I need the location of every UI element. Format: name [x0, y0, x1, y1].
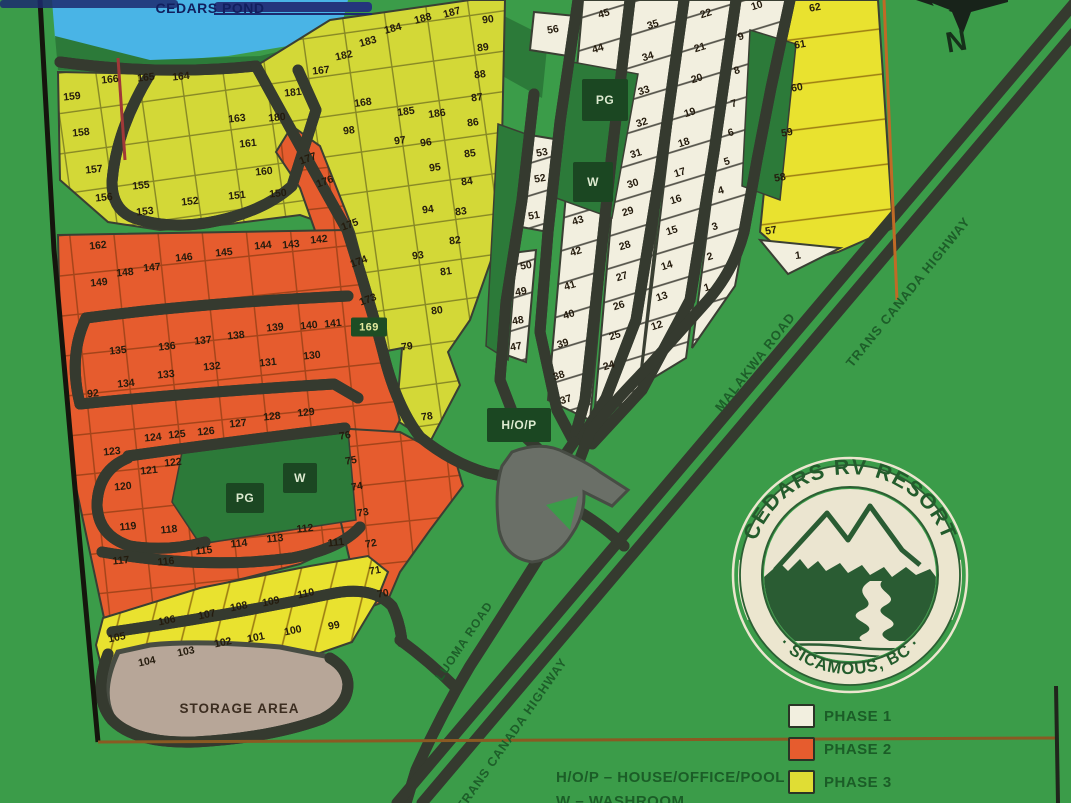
- lot-label-1: 1: [794, 250, 801, 261]
- phase3-swatch-icon: [788, 770, 815, 794]
- phase-legend: PHASE 1 PHASE 2 PHASE 3: [788, 703, 892, 803]
- lot-label-90: 90: [481, 14, 494, 26]
- lot-label-146: 146: [175, 252, 194, 264]
- lot-label-122: 122: [164, 457, 183, 469]
- lot-label-141: 141: [324, 318, 343, 330]
- lot-label-124: 124: [144, 432, 163, 444]
- lot-label-79: 79: [400, 341, 413, 353]
- lot-label-135: 135: [109, 345, 128, 357]
- lot-label-161: 161: [239, 138, 258, 150]
- lot-label-162: 162: [89, 240, 108, 252]
- legend-item-phase2: PHASE 2: [788, 736, 892, 762]
- lot-label-136: 136: [158, 341, 177, 353]
- lot-label-76: 76: [338, 430, 351, 442]
- lot-label-82: 82: [448, 235, 461, 247]
- marker-hop: H/O/P: [487, 408, 551, 442]
- lot-label-130: 130: [303, 350, 322, 362]
- lot-label-129: 129: [297, 407, 316, 419]
- lot-label-131: 131: [259, 357, 278, 369]
- lot-label-52: 52: [533, 173, 546, 185]
- lot-label-73: 73: [356, 507, 369, 519]
- lot-label-156: 156: [95, 192, 114, 204]
- lot-label-57: 57: [764, 225, 777, 237]
- lot-label-112: 112: [296, 523, 314, 535]
- marker-w: W: [283, 463, 317, 493]
- lot-label-150: 150: [269, 188, 288, 200]
- lot-label-180: 180: [268, 112, 287, 124]
- lot-label-86: 86: [466, 117, 479, 129]
- lot-label-89: 89: [476, 42, 489, 54]
- lot-label-75: 75: [344, 455, 357, 467]
- lot-label-132: 132: [203, 361, 222, 373]
- lot-label-159: 159: [63, 91, 82, 103]
- lot-label-163: 163: [228, 113, 247, 125]
- lot-label-186: 186: [428, 108, 447, 121]
- lot-label-95: 95: [428, 162, 441, 174]
- lot-label-115: 115: [195, 545, 213, 557]
- lot-label-153: 153: [136, 206, 155, 218]
- lot-label-58: 58: [773, 172, 786, 184]
- lot-label-166: 166: [101, 74, 120, 86]
- lot-label-113: 113: [266, 533, 284, 545]
- lot-label-165: 165: [137, 72, 156, 84]
- marker-pg: PG: [582, 79, 628, 121]
- lot-label-134: 134: [117, 378, 136, 390]
- lot-label-140: 140: [300, 320, 319, 332]
- lot-label-88: 88: [473, 69, 486, 81]
- lot-label-84: 84: [460, 176, 473, 188]
- phase2-swatch-icon: [788, 737, 815, 761]
- lot-label-151: 151: [228, 190, 247, 202]
- key-line-hop: H/O/P – HOUSE/OFFICE/POOL: [556, 766, 785, 790]
- lot-label-128: 128: [263, 411, 282, 423]
- legend-item-phase3: PHASE 3: [788, 769, 892, 795]
- lot-label-160: 160: [255, 166, 274, 178]
- lot-label-51: 51: [527, 210, 540, 222]
- lot-label-121: 121: [140, 465, 159, 477]
- lot-label-83: 83: [454, 206, 467, 218]
- lot-label-60: 60: [790, 82, 803, 94]
- lot-label-47: 47: [509, 341, 522, 353]
- lot-label-167: 167: [312, 65, 331, 77]
- lot-label-123: 123: [103, 446, 122, 458]
- legend-label: PHASE 2: [824, 741, 892, 758]
- marker-169: 169: [351, 318, 387, 337]
- lot-label-117: 117: [112, 555, 130, 567]
- lot-label-74: 74: [350, 481, 363, 493]
- lot-label-114: 114: [230, 538, 248, 550]
- lot-label-137: 137: [194, 335, 213, 347]
- lot-label-50: 50: [519, 260, 532, 272]
- lot-label-138: 138: [227, 330, 246, 342]
- lot-label-99: 99: [327, 620, 341, 633]
- pond-label: CEDARS POND: [130, 0, 290, 16]
- lot-label-127: 127: [229, 418, 248, 430]
- legend-label: PHASE 1: [824, 708, 892, 725]
- marker-pg: PG: [226, 483, 264, 513]
- lot-label-116: 116: [157, 556, 175, 568]
- lot-label-85: 85: [463, 148, 476, 160]
- lot-label-185: 185: [397, 106, 416, 119]
- lot-label-133: 133: [157, 369, 176, 381]
- lot-label-80: 80: [430, 305, 443, 317]
- lot-label-78: 78: [420, 411, 433, 423]
- lot-label-168: 168: [354, 97, 373, 110]
- lot-label-158: 158: [72, 127, 91, 139]
- lot-label-72: 72: [364, 538, 377, 550]
- lot-label-164: 164: [172, 71, 191, 83]
- lot-label-149: 149: [90, 277, 109, 289]
- resort-map: CEDARS RV RESORT · SICAMOUS, BC · CEDARS…: [0, 0, 1071, 803]
- key-line-w: W – WASHROOM: [556, 790, 785, 803]
- lot-label-142: 142: [310, 234, 329, 246]
- lot-label-98: 98: [342, 125, 355, 137]
- phase1-swatch-icon: [788, 704, 815, 728]
- lot-label-61: 61: [793, 39, 806, 51]
- lot-label-139: 139: [266, 322, 285, 334]
- lot-label-144: 144: [254, 240, 273, 252]
- lot-label-48: 48: [511, 315, 524, 327]
- lot-label-148: 148: [116, 267, 135, 279]
- lot-label-92: 92: [87, 388, 100, 400]
- lot-label-126: 126: [197, 426, 216, 438]
- lot-label-87: 87: [470, 92, 483, 104]
- lot-label-93: 93: [411, 250, 424, 262]
- lot-label-62: 62: [808, 2, 821, 14]
- legend-item-phase1: PHASE 1: [788, 703, 892, 729]
- lot-label-152: 152: [181, 196, 200, 208]
- legend-label: PHASE 3: [824, 774, 892, 791]
- lot-label-155: 155: [132, 180, 151, 192]
- lot-label-94: 94: [421, 204, 434, 216]
- lot-label-71: 71: [368, 565, 381, 577]
- lot-label-96: 96: [419, 137, 432, 149]
- resort-logo: CEDARS RV RESORT · SICAMOUS, BC ·: [730, 455, 970, 695]
- lot-label-118: 118: [160, 524, 178, 536]
- lot-label-120: 120: [114, 481, 133, 493]
- marker-w: W: [573, 162, 613, 202]
- storage-label: STORAGE AREA: [157, 701, 322, 716]
- lot-label-59: 59: [780, 127, 793, 139]
- lot-label-145: 145: [215, 247, 234, 259]
- lot-label-119: 119: [119, 521, 137, 533]
- lot-label-70: 70: [376, 588, 389, 600]
- lot-label-157: 157: [85, 164, 104, 176]
- map-key: H/O/P – HOUSE/OFFICE/POOL W – WASHROOM: [556, 766, 785, 803]
- lot-label-181: 181: [284, 87, 303, 99]
- lot-label-53: 53: [535, 147, 548, 159]
- lot-label-147: 147: [143, 262, 162, 274]
- lot-label-81: 81: [439, 266, 452, 278]
- lot-label-56: 56: [546, 24, 559, 36]
- lot-label-49: 49: [514, 286, 527, 298]
- lot-label-97: 97: [393, 135, 406, 147]
- lot-label-125: 125: [168, 429, 187, 441]
- lot-label-143: 143: [282, 239, 301, 251]
- lot-label-111: 111: [327, 537, 344, 549]
